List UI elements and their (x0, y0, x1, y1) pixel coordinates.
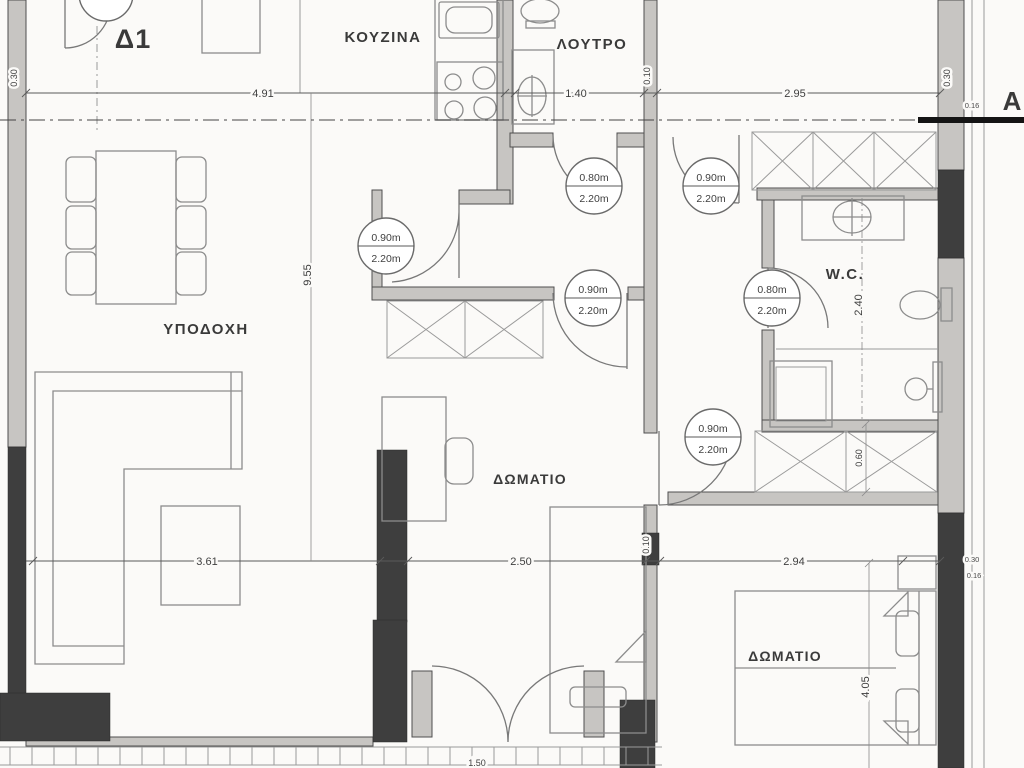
closet-corridor (755, 431, 937, 492)
door-height-label: 2.20m (757, 305, 786, 317)
entry-cabinet (202, 0, 260, 53)
dining-chair (176, 206, 206, 249)
door-width-label: 0.90m (696, 172, 725, 184)
dining-table (96, 151, 176, 304)
wall-bath-bottom-right (617, 133, 644, 147)
door-size-badge-5: 0.80m 2.20m (744, 270, 800, 326)
wall-wc-left-lower (762, 330, 774, 422)
door-width-label: 0.90m (698, 423, 727, 435)
door-size-badge-4: 0.90m 2.20m (565, 270, 621, 326)
column-right-bottom (938, 513, 964, 768)
dim-label-balcony-door-width: 1.50 (468, 758, 486, 768)
sofa-back-line (53, 391, 242, 646)
door-badges-layer: 0.90m 2.20m 0.80m 2.20m 0.90m 2.20m 0.90… (358, 158, 800, 465)
entrance-door-badge-clipped (79, 0, 133, 21)
kitchen-sink-basin (446, 7, 492, 33)
column-balcony-left (373, 620, 407, 742)
door-width-label: 0.90m (371, 232, 400, 244)
bed-fold-corner (616, 631, 646, 662)
column-bottom-left (0, 693, 110, 741)
dimension-labels-layer: 4.91 1.40 2.95 0.30 0.10 0.30 0.16 9.55 … (9, 67, 981, 768)
door-size-badge-2: 0.80m 2.20m (566, 158, 622, 214)
dim-label-wall-bath: 0.10 (642, 67, 652, 85)
closet-x-pattern (755, 431, 937, 492)
bath-sink-tap-cross (517, 75, 547, 117)
dim-label-living-width: 3.61 (196, 556, 217, 568)
room-label-bedroom-1: ΔΩΜΑΤΙΟ (493, 471, 567, 487)
wall-wc-bottom (762, 420, 938, 432)
dim-label-bedroom1-width: 2.50 (510, 556, 531, 568)
dim-label-bedroom2-wall: 0.30 (965, 555, 980, 564)
shower-head-icon (905, 378, 927, 400)
apartment-label: Δ1 (115, 24, 151, 54)
door-width-label: 0.80m (757, 284, 786, 296)
door-height-label: 2.20m (371, 253, 400, 265)
furniture-layer (35, 0, 952, 745)
door-height-label: 2.20m (696, 193, 725, 205)
balcony-railing-lines (0, 747, 662, 765)
dim-label-wc-depth: 2.40 (853, 294, 865, 315)
column-left (8, 447, 26, 695)
stove-burner (474, 97, 496, 119)
door-size-badge-3: 0.90m 2.20m (683, 158, 739, 214)
dim-label-top-right-width: 2.95 (784, 88, 805, 100)
wall-balcony-jamb-left (412, 671, 432, 737)
wall-wc-left-upper (762, 200, 774, 268)
wall-left-exterior (8, 0, 26, 447)
wall-bedroom2-top (668, 492, 938, 505)
floor-plan-page: 0.90m 2.20m 0.80m 2.20m 0.90m 2.20m 0.90… (0, 0, 1024, 768)
dim-label-plan-depth: 9.55 (302, 264, 314, 285)
dim-line-bedroom2-depth (865, 559, 873, 768)
door-height-label: 2.20m (578, 305, 607, 317)
dim-label-closet-depth: 0.60 (854, 449, 864, 467)
wc-toilet-icon (900, 291, 940, 319)
room-label-kitchen: ΚΟΥΖΙΝΑ (345, 29, 422, 46)
structure-lines-layer (0, 0, 984, 768)
door-width-label: 0.90m (578, 284, 607, 296)
door-size-badge-1: 0.90m 2.20m (358, 218, 414, 274)
room-label-bedroom-2: ΔΩΜΑΤΙΟ (748, 648, 822, 664)
dim-label-bedroom2-depth: 4.05 (860, 676, 872, 697)
door-height-label: 2.20m (579, 193, 608, 205)
doors-layer (65, 0, 828, 742)
dim-label-wall-right: 0.30 (942, 69, 952, 87)
bath-vanity (512, 50, 554, 124)
stove (437, 62, 503, 120)
wc-sink-tap-cross (833, 198, 871, 236)
wall-corridor-left (644, 0, 657, 433)
dim-label-kitchen-width: 4.91 (252, 88, 273, 100)
column-right-top (938, 170, 964, 258)
section-marker-label: A (1003, 86, 1022, 116)
wardrobe-top-right (752, 132, 936, 190)
section-cut-line-solid (918, 117, 1024, 123)
door-height-label: 2.20m (698, 444, 727, 456)
wardrobe-x-pattern (752, 132, 936, 190)
shower-tray (770, 361, 832, 427)
dining-chair (66, 206, 96, 249)
dining-chair (66, 252, 96, 295)
dining-chair (66, 157, 96, 202)
dining-table-set (66, 151, 206, 304)
bathroom-fixtures (512, 0, 559, 124)
closet-bedroom1 (387, 301, 543, 358)
balcony-railing-ticks (10, 747, 648, 765)
closet-x-pattern (387, 301, 543, 358)
balcony-french-door-swing (432, 666, 584, 742)
dim-label-wall-bedroom1: 0.10 (641, 536, 651, 554)
wall-bedroom1-top-stub (628, 287, 644, 300)
dim-label-wall-left: 0.30 (9, 69, 19, 87)
dim-label-wall-right-offset: 0.16 (965, 101, 980, 110)
door-size-badge-6: 0.90m 2.20m (685, 409, 741, 465)
dining-chair (176, 157, 206, 202)
sofa-corner (35, 372, 242, 664)
wall-kitchen-bottom (459, 190, 510, 204)
wall-bath-bottom-left (510, 133, 553, 147)
dim-label-bathroom-width: 1.40 (565, 88, 586, 100)
wall-bedroom1-top (372, 287, 554, 300)
column-balcony-right (620, 700, 655, 768)
stove-burner (473, 67, 495, 89)
dim-label-bedroom2-wall-offset: 0.16 (967, 571, 982, 580)
walls-light-layer (8, 0, 964, 746)
dining-chair (176, 252, 206, 295)
door-width-label: 0.80m (579, 172, 608, 184)
bed-pillow (896, 611, 919, 656)
bed-headboard-and-center-line (735, 591, 919, 745)
floor-plan-drawing: 0.90m 2.20m 0.80m 2.20m 0.90m 2.20m 0.90… (0, 0, 1024, 768)
room-label-reception: ΥΠΟΔΟΧΗ (163, 321, 249, 338)
dim-label-bedroom2-width: 2.94 (783, 556, 804, 568)
wall-balcony-jamb-right (584, 671, 604, 737)
counter-outline (435, 0, 503, 120)
shower-tray-inner (776, 367, 826, 421)
room-label-bathroom: ΛΟΥΤΡΟ (557, 36, 628, 53)
stove-burner (445, 101, 463, 119)
toilet-icon (521, 0, 559, 23)
desk-chair (445, 438, 473, 484)
stove-burner (445, 74, 461, 90)
sofa-outline (35, 372, 242, 664)
kitchen-counter (435, 0, 503, 120)
room-label-wc: W.C. (826, 266, 865, 283)
